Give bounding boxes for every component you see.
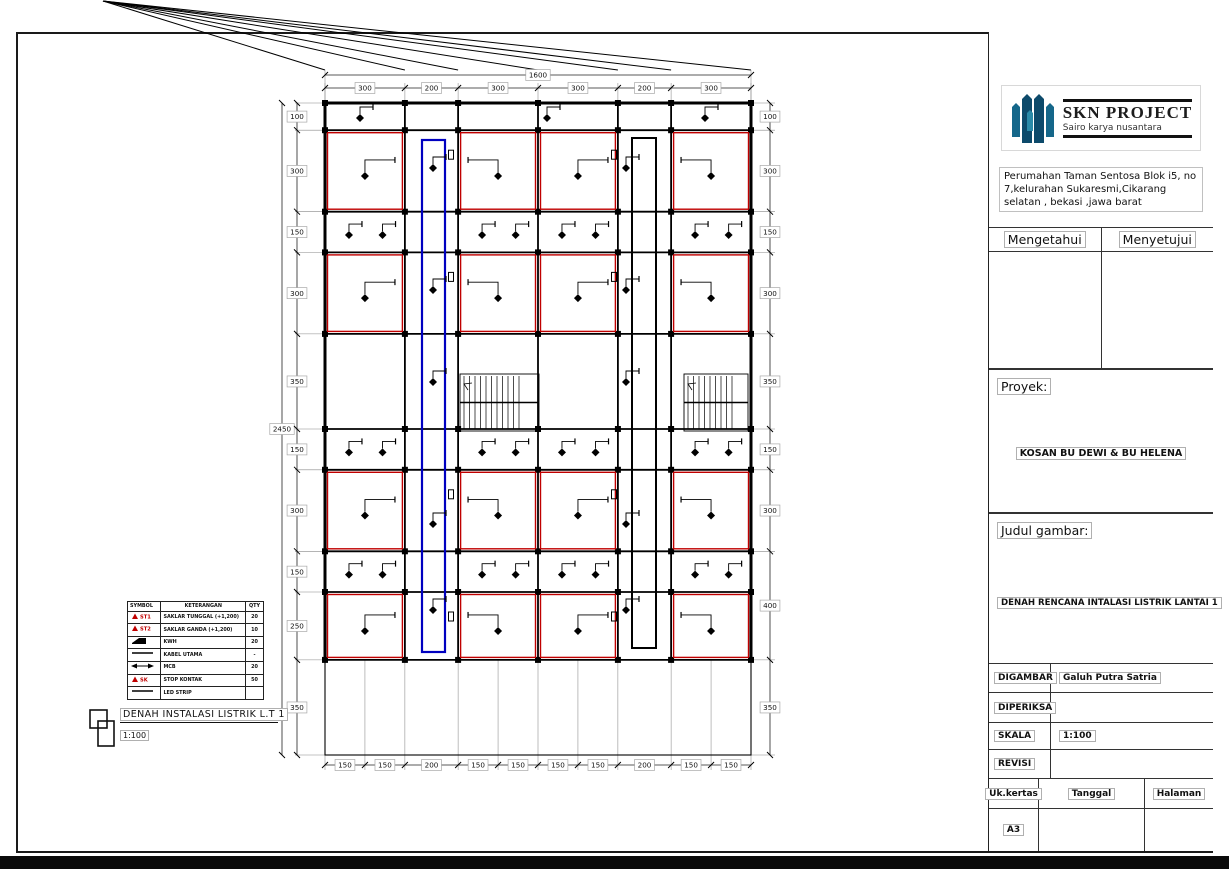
project-name: KOSAN BU DEWI & BU HELENA — [1016, 447, 1187, 460]
dimensions: 1600300200300300200300245010030015030035… — [270, 70, 780, 771]
title-block: SKN PROJECT Sairo karya nusantara Peruma… — [988, 32, 1213, 851]
paper-header-row: Uk.kertas Tanggal Halaman — [989, 778, 1213, 808]
drawing-title: DENAH INSTALASI LISTRIK L.T 1 — [120, 708, 288, 721]
svg-text:350: 350 — [290, 703, 304, 712]
legend-row: MCB20 — [128, 661, 264, 674]
diperiksa-row: DIPERIKSA — [989, 692, 1213, 722]
svg-text:2450: 2450 — [273, 425, 292, 434]
page-value — [1145, 809, 1213, 851]
logo-section: SKN PROJECT Sairo karya nusantara — [989, 32, 1213, 165]
svg-text:150: 150 — [763, 228, 777, 237]
diperiksa-label: DIPERIKSA — [994, 702, 1056, 714]
svg-text:150: 150 — [591, 761, 605, 770]
legend-table: SYMBOLKETERANGANQTYST1SAKLAR TUNGGAL (+1… — [127, 601, 264, 700]
address-section: Perumahan Taman Sentosa Blok i5, no 7,ke… — [989, 165, 1213, 227]
svg-text:350: 350 — [763, 377, 777, 386]
legend-row: LED STRIP — [128, 687, 264, 700]
paper-label: Uk.kertas — [985, 788, 1042, 800]
svg-text:150: 150 — [511, 761, 525, 770]
company-name: SKN PROJECT — [1063, 102, 1193, 123]
svg-text:350: 350 — [290, 377, 304, 386]
sheet-title-label: Judul gambar: — [997, 522, 1092, 539]
svg-text:SK: SK — [140, 677, 149, 682]
approval-left-label: Mengetahui — [1004, 231, 1086, 248]
project-label: Proyek: — [997, 378, 1051, 395]
svg-text:200: 200 — [638, 761, 652, 770]
switch-marks — [449, 150, 617, 621]
digambar-row: DIGAMBAR Galuh Putra Satria — [989, 663, 1213, 692]
svg-text:300: 300 — [290, 289, 304, 298]
svg-text:150: 150 — [290, 445, 304, 454]
approval-header: Mengetahui Menyetujui — [989, 227, 1213, 252]
skala-value: 1:100 — [1059, 730, 1096, 742]
svg-text:350: 350 — [763, 703, 777, 712]
svg-text:300: 300 — [763, 506, 777, 515]
digambar-value: Galuh Putra Satria — [1059, 672, 1161, 684]
svg-text:300: 300 — [763, 167, 777, 176]
logo-bottom-bar — [1063, 135, 1193, 138]
date-value — [1039, 809, 1145, 851]
svg-text:200: 200 — [425, 761, 439, 770]
svg-text:150: 150 — [290, 228, 304, 237]
svg-text:200: 200 — [425, 84, 439, 93]
svg-text:250: 250 — [290, 622, 304, 631]
svg-text:200: 200 — [638, 84, 652, 93]
approval-signature-area — [989, 252, 1213, 368]
company-logo: SKN PROJECT Sairo karya nusantara — [1001, 85, 1202, 151]
svg-text:300: 300 — [704, 84, 718, 93]
company-address: Perumahan Taman Sentosa Blok i5, no 7,ke… — [999, 167, 1203, 212]
svg-text:150: 150 — [338, 761, 352, 770]
drawing-scale: 1:100 — [120, 730, 149, 741]
svg-text:300: 300 — [290, 167, 304, 176]
svg-text:100: 100 — [763, 112, 777, 121]
svg-text:150: 150 — [290, 567, 304, 576]
date-label: Tanggal — [1068, 788, 1116, 800]
revisi-value — [1051, 750, 1213, 778]
diperiksa-value — [1051, 693, 1213, 722]
page-label: Halaman — [1153, 788, 1206, 800]
skala-row: SKALA 1:100 — [989, 722, 1213, 749]
svg-text:150: 150 — [551, 761, 565, 770]
stairs — [460, 374, 748, 431]
svg-text:ST2: ST2 — [140, 627, 151, 632]
detail-marker-icon — [88, 708, 116, 750]
skala-label: SKALA — [994, 730, 1035, 742]
legend-row: ST1SAKLAR TUNGGAL (+1,200)20 — [128, 611, 264, 624]
svg-text:100: 100 — [290, 112, 304, 121]
svg-text:300: 300 — [763, 289, 777, 298]
approval-right-label: Menyetujui — [1119, 231, 1196, 248]
revisi-row: REVISI — [989, 749, 1213, 778]
svg-text:150: 150 — [684, 761, 698, 770]
svg-text:300: 300 — [358, 84, 372, 93]
signature-left — [989, 252, 1102, 368]
legend-row: SKSTOP KONTAK50 — [128, 674, 264, 687]
legend-row: ST2SAKLAR GANDA (+1,200)10 — [128, 624, 264, 637]
sheet-title-value: DENAH RENCANA INTALASI LISTRIK LANTAI 1 — [997, 597, 1222, 609]
svg-text:1600: 1600 — [529, 71, 548, 80]
svg-text:300: 300 — [290, 506, 304, 515]
company-tagline: Sairo karya nusantara — [1063, 123, 1193, 135]
svg-text:150: 150 — [763, 445, 777, 454]
legend-row: KABEL UTAMA- — [128, 649, 264, 662]
drawing-sheet: 1600300200300300200300245010030015030035… — [0, 0, 1229, 869]
digambar-label: DIGAMBAR — [994, 672, 1057, 684]
legend-header-row: SYMBOLKETERANGANQTY — [128, 602, 264, 612]
signature-right — [1102, 252, 1214, 368]
svg-text:150: 150 — [724, 761, 738, 770]
svg-text:ST1: ST1 — [140, 614, 151, 619]
svg-text:300: 300 — [491, 84, 505, 93]
legend-row: KWH20 — [128, 636, 264, 649]
svg-text:150: 150 — [471, 761, 485, 770]
title-underline — [120, 722, 278, 723]
sheet-bottom-bar — [0, 856, 1229, 869]
sheet-title-section: Judul gambar: DENAH RENCANA INTALASI LIS… — [989, 512, 1213, 663]
svg-text:150: 150 — [378, 761, 392, 770]
skn-buildings-icon — [1010, 91, 1056, 145]
revisi-label: REVISI — [994, 758, 1035, 770]
paper-size-value: A3 — [1003, 824, 1024, 836]
svg-text:300: 300 — [571, 84, 585, 93]
project-section: Proyek: KOSAN BU DEWI & BU HELENA — [989, 368, 1213, 512]
drawing-title-block: DENAH INSTALASI LISTRIK L.T 1 1:100 — [88, 708, 288, 750]
paper-value-row: A3 — [989, 808, 1213, 851]
svg-text:400: 400 — [763, 601, 777, 610]
